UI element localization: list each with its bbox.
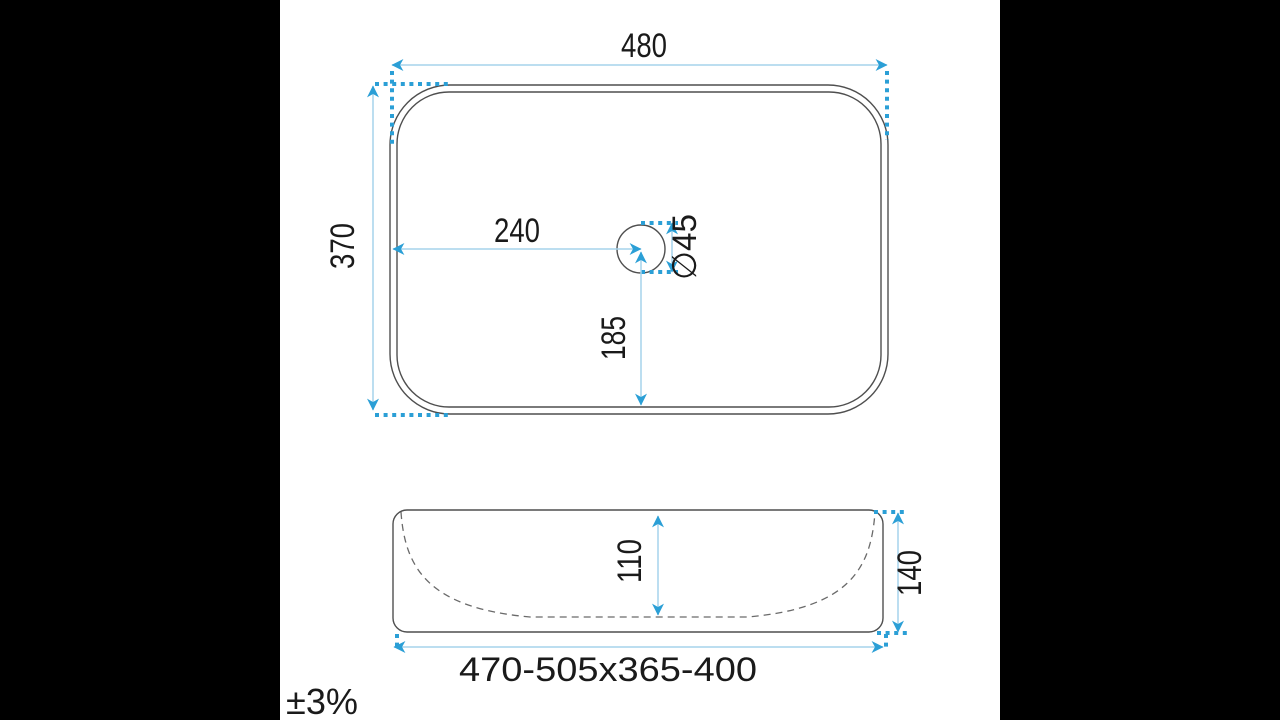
dimension-label-depth: 370 bbox=[324, 223, 362, 269]
tolerance-note: ±3% bbox=[286, 681, 358, 720]
dimension-label-width: 480 bbox=[621, 27, 667, 65]
dimension-label-drain-diameter: ∅45 bbox=[666, 214, 704, 280]
dimension-drain-offset-x: 240 bbox=[393, 212, 641, 250]
dimension-width: 480 bbox=[392, 27, 887, 65]
letterbox-left bbox=[0, 0, 280, 720]
dimension-label-basin-depth: 110 bbox=[611, 539, 649, 583]
dimension-overall-height: 140 bbox=[891, 513, 929, 632]
dimension-depth: 370 bbox=[324, 86, 373, 410]
dimension-basin-depth: 110 bbox=[611, 516, 658, 615]
top-view: 480 370 240 185 ∅45 bbox=[324, 27, 888, 415]
dimension-label-drain-offset-x: 240 bbox=[494, 212, 540, 250]
sink-technical-drawing: 480 370 240 185 ∅45 bbox=[280, 0, 1000, 720]
dimension-label-footprint-range: 470-505x365-400 bbox=[459, 651, 757, 689]
dimension-label-drain-offset-y: 185 bbox=[595, 316, 633, 360]
drawing-canvas: 480 370 240 185 ∅45 bbox=[0, 0, 1280, 720]
dimension-footprint-range: 470-505x365-400 bbox=[394, 647, 883, 689]
dimension-drain-diameter: ∅45 bbox=[666, 214, 704, 280]
letterbox-right bbox=[1000, 0, 1280, 720]
dimension-drain-offset-y: 185 bbox=[595, 252, 641, 405]
side-view: 110 140 470-505x365-400 bbox=[393, 510, 929, 689]
dimension-label-overall-height: 140 bbox=[891, 550, 929, 596]
